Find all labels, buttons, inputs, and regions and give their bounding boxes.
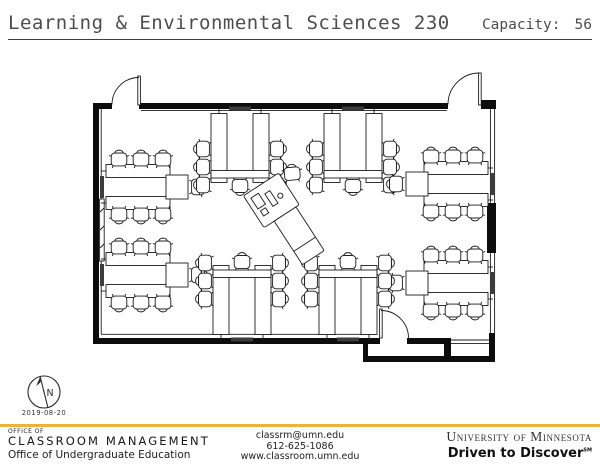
university-wordmark: University of Minnesota: [446, 430, 592, 444]
footer-office-block: OFFICE OF CLASSROOM MANAGEMENT Office of…: [8, 429, 210, 460]
chair: [382, 139, 400, 159]
chair: [196, 289, 214, 309]
plan-date: 2019-08-20: [22, 409, 67, 417]
gold-divider: [0, 424, 600, 427]
classroom-management-label: CLASSROOM MANAGEMENT: [8, 436, 210, 448]
floor-plan-page: Learning & Environmental Sciences 230 Ca…: [0, 0, 600, 464]
floor-service-box: [490, 173, 494, 195]
undergrad-education-label: Office of Undergraduate Education: [8, 450, 210, 461]
floor-service-box: [100, 176, 104, 198]
contact-email: classrm@umn.edu: [241, 431, 360, 442]
chair: [302, 289, 320, 309]
chair: [232, 253, 252, 271]
chair: [194, 157, 212, 177]
floor-service-box: [229, 107, 251, 111]
chair: [382, 157, 400, 177]
service-mark: SM: [583, 447, 592, 453]
footer-contact-block: classrm@umn.edu 612-625-1086 www.classro…: [241, 431, 360, 463]
door-top-right: [448, 73, 481, 105]
table-group-top-right: [307, 107, 400, 196]
chair: [271, 289, 289, 309]
chair: [307, 157, 325, 177]
door-top-left: [112, 76, 140, 105]
chair: [271, 271, 289, 291]
chair: [269, 139, 287, 159]
tagline: Driven to DiscoverSM: [446, 447, 592, 460]
chair: [338, 253, 358, 271]
contact-website: www.classroom.umn.edu: [241, 452, 360, 463]
floor-service-box: [231, 338, 253, 342]
chair: [271, 253, 289, 273]
chair: [307, 175, 325, 195]
door-bottom: [380, 309, 409, 338]
chair: [307, 139, 325, 159]
chair: [302, 271, 320, 291]
chair: [377, 289, 395, 309]
chair: [343, 178, 363, 196]
table-group-left-upper: [100, 150, 207, 224]
chair: [377, 253, 395, 273]
floor-plan: N2019-08-20: [0, 0, 600, 464]
north-arrow-icon: N: [28, 376, 60, 409]
floor-service-box: [100, 264, 104, 286]
chair: [194, 139, 212, 159]
footer-brand-block: University of Minnesota Driven to Discov…: [446, 430, 592, 460]
table-group-left-lower: [100, 238, 207, 312]
marker-board: [100, 199, 105, 261]
north-label: N: [47, 388, 54, 399]
floor-service-box: [342, 107, 364, 111]
floor-service-box: [337, 338, 359, 342]
floor-service-box: [490, 272, 494, 294]
chair: [230, 178, 250, 196]
table-group-right-upper: [387, 147, 494, 221]
table-group-right-middle: [387, 246, 494, 320]
table-group-bottom-left: [196, 253, 289, 342]
